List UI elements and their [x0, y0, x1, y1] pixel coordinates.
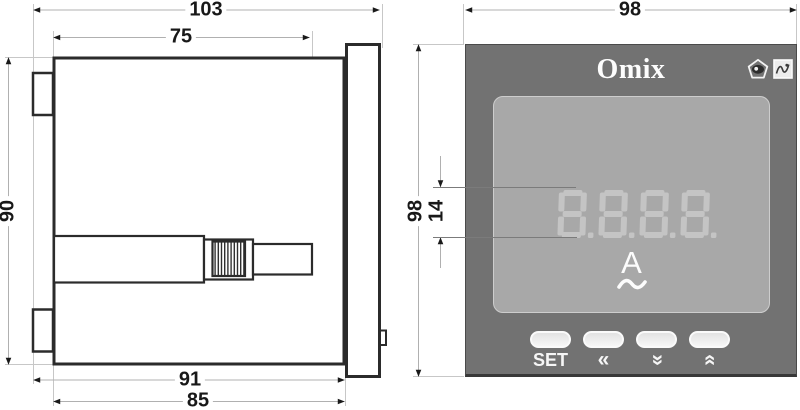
seven-segment-display	[557, 190, 719, 238]
button-row	[524, 331, 736, 348]
dim-label-depth-to-panel: 91	[175, 370, 205, 391]
dimensional-drawing: 103 75 90 91 85 98 98 14 Omix	[0, 0, 800, 410]
button-label-row: SET « « «	[524, 350, 736, 370]
chevron-up-icon: «	[700, 354, 720, 366]
dim-label-body-depth: 85	[183, 391, 213, 410]
certification-pentagon-eye-icon	[747, 58, 769, 80]
set-button-label: SET	[524, 350, 577, 370]
set-button[interactable]	[530, 331, 571, 348]
meter-front-panel: Omix	[465, 44, 797, 377]
dim-label-height: 90	[0, 196, 19, 226]
increase-button[interactable]	[689, 331, 730, 348]
unit-letter: A	[621, 245, 642, 280]
certification-signature-icon	[773, 59, 793, 79]
certification-marks	[747, 58, 793, 80]
decrease-button-label: «	[630, 350, 683, 370]
dim-label-front-height: 98	[406, 196, 427, 226]
shift-left-button[interactable]	[583, 331, 624, 348]
dim-label-total-depth: 103	[185, 0, 226, 21]
decrease-button[interactable]	[636, 331, 677, 348]
shift-left-button-label: «	[577, 350, 630, 370]
unit-symbol: A	[494, 250, 769, 291]
chevron-down-icon: «	[647, 354, 667, 366]
dim-label-front-depth: 75	[166, 27, 196, 48]
lcd-display: A	[493, 96, 770, 313]
increase-button-label: «	[683, 350, 736, 370]
dim-label-digit-height: 14	[427, 196, 448, 226]
dim-label-front-width: 98	[615, 0, 645, 21]
chevron-left-icon: «	[598, 348, 610, 371]
